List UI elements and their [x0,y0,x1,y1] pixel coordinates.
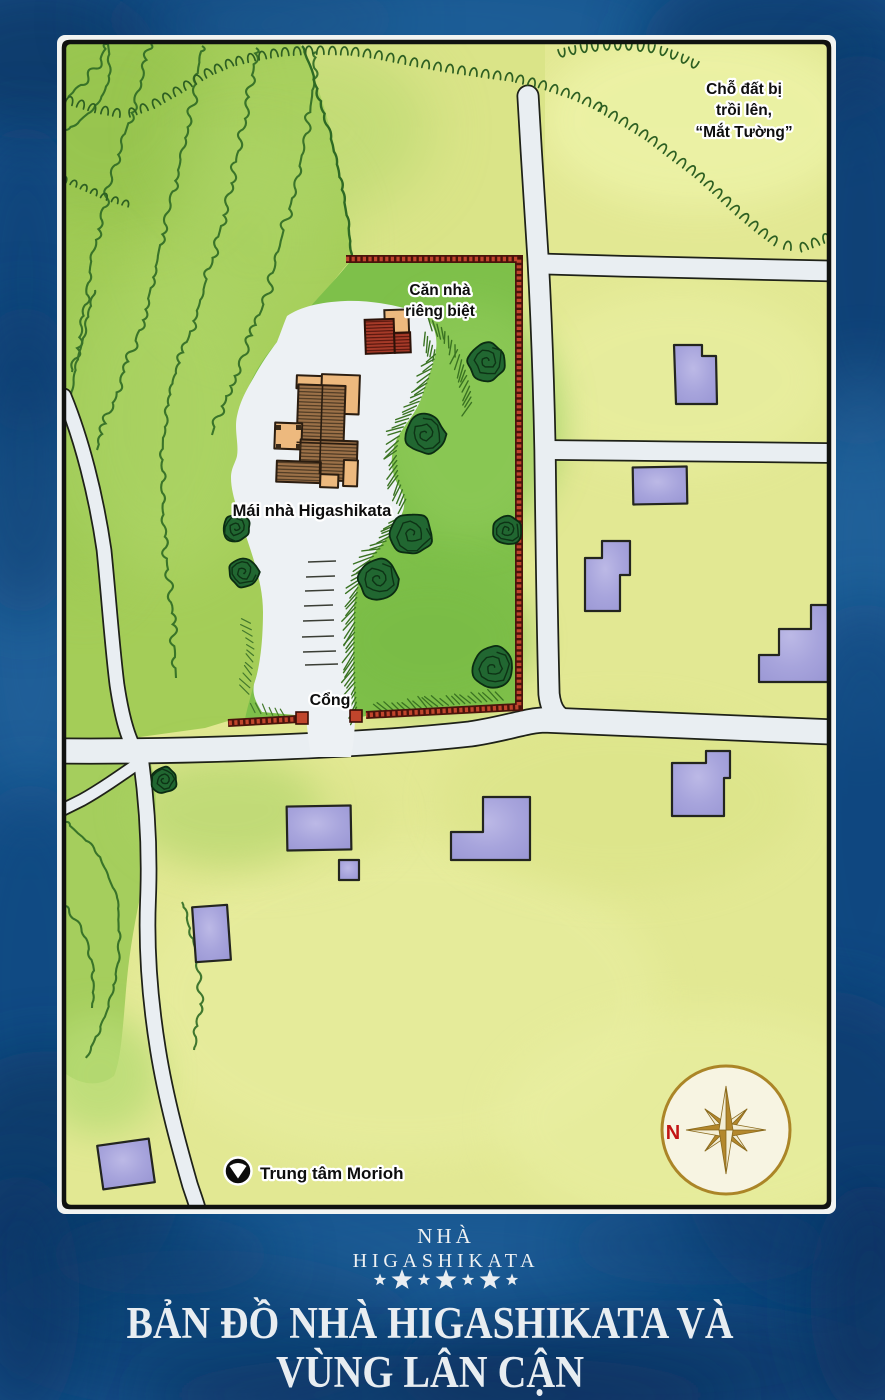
svg-text:HIGASHIKATA: HIGASHIKATA [353,1250,540,1272]
svg-text:BẢN ĐỒ NHÀ HIGASHIKATA VÀ: BẢN ĐỒ NHÀ HIGASHIKATA VÀ [127,1298,734,1348]
svg-text:VÙNG LÂN CẬN: VÙNG LÂN CẬN [276,1347,584,1397]
svg-text:Mái nhà Higashikata: Mái nhà Higashikata [233,502,392,520]
svg-text:trồi lên,: trồi lên, [716,102,772,119]
svg-text:“Mắt Tường”: “Mắt Tường” [695,123,792,141]
svg-text:Chỗ đất bị: Chỗ đất bị [706,81,782,98]
svg-text:NHÀ: NHÀ [417,1224,475,1248]
svg-text:Căn nhà: Căn nhà [409,282,471,299]
svg-text:Cổng: Cổng [310,691,351,709]
svg-text:Trung tâm Morioh: Trung tâm Morioh [260,1164,404,1183]
svg-text:riêng biệt: riêng biệt [405,303,475,320]
svg-text:N: N [666,1122,680,1144]
